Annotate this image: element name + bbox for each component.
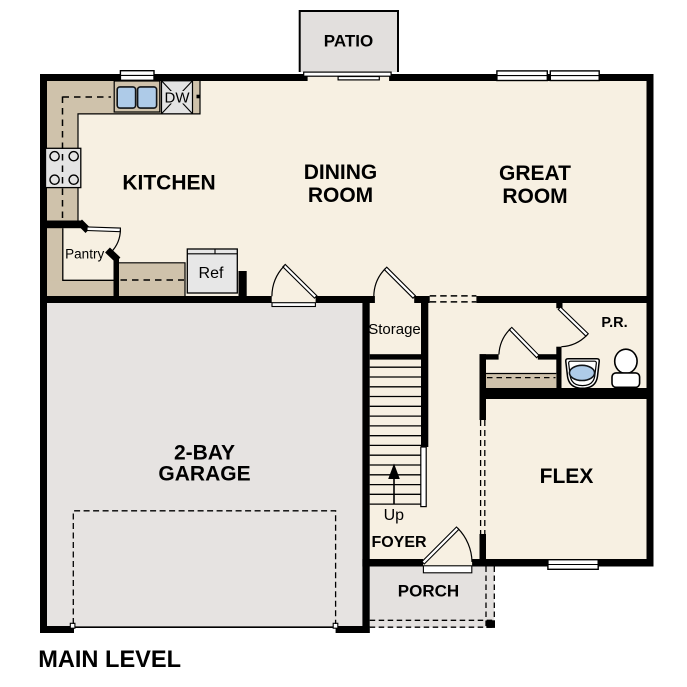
svg-text:DINING: DINING (304, 161, 378, 184)
svg-text:P.R.: P.R. (601, 315, 627, 331)
svg-text:ROOM: ROOM (308, 184, 373, 207)
svg-text:PATIO: PATIO (324, 31, 373, 50)
svg-text:KITCHEN: KITCHEN (122, 171, 215, 194)
svg-text:FLEX: FLEX (540, 465, 594, 488)
svg-text:Up: Up (384, 507, 405, 524)
svg-text:GREAT: GREAT (499, 162, 571, 185)
svg-text:ROOM: ROOM (502, 185, 567, 208)
svg-text:DW: DW (165, 90, 191, 107)
svg-text:Pantry: Pantry (65, 247, 104, 262)
svg-text:GARAGE: GARAGE (158, 463, 250, 486)
svg-text:2-BAY: 2-BAY (174, 442, 235, 465)
svg-text:FOYER: FOYER (371, 534, 427, 551)
svg-text:Storage: Storage (368, 321, 421, 338)
svg-text:PORCH: PORCH (398, 582, 459, 601)
svg-text:Ref: Ref (199, 265, 224, 282)
svg-text:MAIN LEVEL: MAIN LEVEL (38, 647, 181, 673)
